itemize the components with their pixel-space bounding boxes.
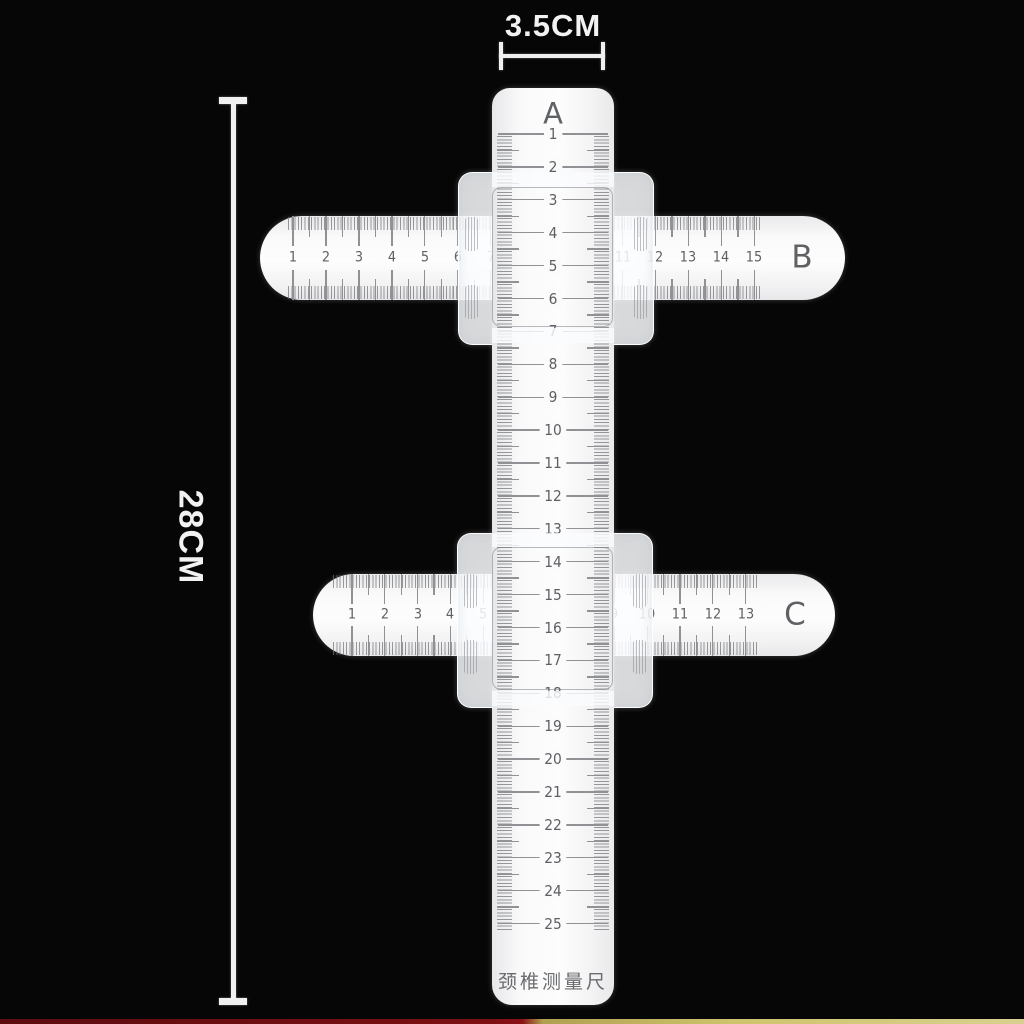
half-tick — [696, 635, 697, 656]
half-tick — [497, 150, 519, 151]
half-tick — [587, 479, 609, 480]
cm-tick — [712, 626, 713, 656]
ruler-number: 21 — [540, 784, 567, 801]
cm-tick — [745, 626, 746, 656]
half-tick — [408, 279, 409, 300]
ruler-number: 1 — [289, 250, 297, 265]
upper-slider-top-lip — [492, 172, 614, 187]
half-tick — [587, 874, 609, 875]
ruler-number: 1 — [348, 607, 356, 622]
half-tick — [497, 742, 519, 743]
ruler-number: 13 — [680, 250, 696, 265]
half-tick — [663, 635, 664, 656]
cm-tick — [679, 626, 680, 656]
half-tick — [441, 216, 442, 237]
slider-grip — [634, 217, 647, 251]
half-tick — [375, 279, 376, 300]
half-tick — [497, 347, 519, 348]
slider-grip — [634, 285, 647, 319]
half-tick — [587, 808, 609, 809]
ruler-number: 8 — [544, 356, 562, 373]
half-tick — [401, 635, 402, 656]
half-tick — [587, 742, 609, 743]
cm-tick — [721, 216, 722, 246]
half-tick — [309, 216, 310, 237]
half-tick — [497, 874, 519, 875]
width-dimension-label: 3.5CM — [505, 8, 601, 44]
half-tick — [704, 279, 705, 300]
half-tick — [587, 446, 609, 447]
half-tick — [663, 574, 664, 595]
ruler-a-footer: 颈椎测量尺 — [498, 967, 608, 994]
ruler-number: 15 — [746, 250, 762, 265]
slider-grip — [464, 640, 477, 674]
lower-slider-bottom-lip — [492, 691, 614, 706]
ruler-number: 4 — [388, 250, 396, 265]
cm-tick — [655, 216, 656, 246]
half-tick — [497, 775, 519, 776]
half-tick — [497, 808, 519, 809]
lower-slider-window — [492, 547, 613, 690]
ruler-number: 13 — [737, 607, 753, 622]
half-tick — [368, 635, 369, 656]
half-tick — [497, 446, 519, 447]
cm-tick — [384, 574, 385, 604]
cm-tick — [712, 574, 713, 604]
half-tick — [729, 635, 730, 656]
half-tick — [433, 574, 434, 595]
product-photo: { "scene": { "description": "cervical me… — [0, 0, 1024, 1024]
ruler-a-label: A — [543, 100, 563, 129]
slider-grip — [633, 574, 646, 608]
half-tick — [497, 906, 519, 907]
ruler-number: 11 — [672, 607, 688, 622]
ruler-number: 4 — [446, 607, 454, 622]
half-tick — [587, 413, 609, 414]
ruler-number: 2 — [322, 250, 330, 265]
half-tick — [433, 635, 434, 656]
slider-grip — [464, 574, 477, 608]
half-tick — [368, 574, 369, 595]
height-dimension-label: 28CM — [171, 490, 210, 585]
half-tick — [375, 216, 376, 237]
ruler-c-label: C — [784, 600, 806, 631]
cm-tick — [417, 626, 418, 656]
cm-tick — [325, 270, 326, 300]
height-line-bottom-cap — [219, 998, 247, 1005]
half-tick — [587, 709, 609, 710]
ruler-number: 23 — [540, 850, 567, 867]
half-tick — [696, 574, 697, 595]
bottom-edge-strip — [0, 1019, 1024, 1024]
upper-slider-window — [492, 187, 613, 327]
half-tick — [309, 279, 310, 300]
cm-tick — [292, 216, 293, 246]
cm-tick — [292, 270, 293, 300]
half-tick — [401, 574, 402, 595]
half-tick — [342, 216, 343, 237]
half-tick — [671, 279, 672, 300]
cm-tick — [358, 216, 359, 246]
ruler-number: 5 — [421, 250, 429, 265]
ruler-number: 11 — [540, 455, 567, 472]
cm-tick — [351, 574, 352, 604]
cm-tick — [688, 216, 689, 246]
cm-tick — [688, 270, 689, 300]
half-tick — [497, 479, 519, 480]
cm-tick — [391, 270, 392, 300]
half-tick — [737, 279, 738, 300]
half-tick — [497, 512, 519, 513]
half-tick — [704, 216, 705, 237]
ruler-number: 3 — [413, 607, 421, 622]
lower-slider-top-lip — [492, 533, 614, 547]
ruler-number: 3 — [355, 250, 363, 265]
upper-slider-bottom-lip — [492, 328, 614, 343]
width-bracket-line — [499, 54, 605, 58]
slider-grip — [465, 217, 478, 251]
half-tick — [342, 279, 343, 300]
ruler-number: 24 — [540, 882, 567, 899]
half-tick — [729, 574, 730, 595]
cm-tick — [325, 216, 326, 246]
ruler-number: 14 — [713, 250, 729, 265]
cm-tick — [424, 216, 425, 246]
half-tick — [497, 380, 519, 381]
cm-tick — [754, 270, 755, 300]
half-tick — [497, 413, 519, 414]
cm-tick — [450, 574, 451, 604]
ruler-number: 22 — [540, 817, 567, 834]
cm-tick — [351, 626, 352, 656]
cm-tick — [384, 626, 385, 656]
half-tick — [587, 775, 609, 776]
half-tick — [497, 841, 519, 842]
cm-tick — [745, 574, 746, 604]
width-bracket-right-cap — [601, 42, 605, 70]
cm-tick — [450, 626, 451, 656]
half-tick — [737, 216, 738, 237]
half-tick — [587, 841, 609, 842]
half-tick — [671, 216, 672, 237]
cm-tick — [391, 216, 392, 246]
ruler-number: 20 — [540, 751, 567, 768]
half-tick — [587, 347, 609, 348]
ruler-b-label: B — [791, 243, 812, 274]
height-line — [231, 100, 236, 1002]
slider-grip — [465, 285, 478, 319]
ruler-number: 12 — [540, 488, 567, 505]
ruler-number: 9 — [544, 389, 562, 406]
half-tick — [587, 906, 609, 907]
cm-tick — [417, 574, 418, 604]
half-tick — [587, 150, 609, 151]
cm-tick — [721, 270, 722, 300]
cm-tick — [754, 216, 755, 246]
cm-tick — [655, 270, 656, 300]
ruler-number: 10 — [540, 422, 567, 439]
ruler-number: 19 — [540, 718, 567, 735]
half-tick — [441, 279, 442, 300]
ruler-number: 2 — [381, 607, 389, 622]
cm-tick — [679, 574, 680, 604]
half-tick — [408, 216, 409, 237]
half-tick — [587, 512, 609, 513]
half-tick — [587, 380, 609, 381]
cm-tick — [424, 270, 425, 300]
slider-grip — [633, 640, 646, 674]
cm-tick — [358, 270, 359, 300]
ruler-number: 25 — [540, 915, 567, 932]
half-tick — [497, 709, 519, 710]
ruler-number: 12 — [705, 607, 721, 622]
